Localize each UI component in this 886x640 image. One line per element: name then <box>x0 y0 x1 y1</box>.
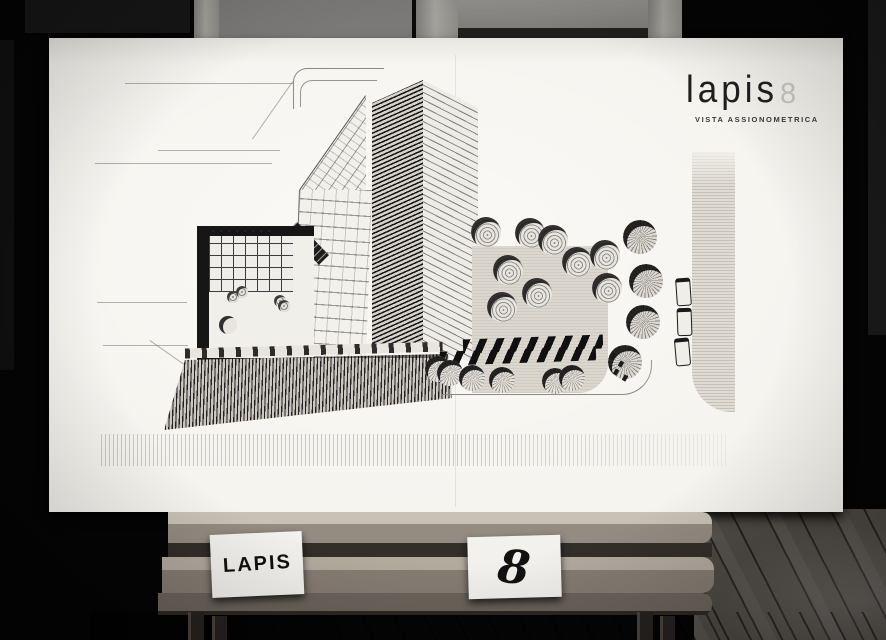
wood-floor-front <box>90 612 886 640</box>
background-wall-edge <box>868 0 886 335</box>
tree <box>236 286 248 298</box>
roof-parapet-line <box>252 81 293 139</box>
tree <box>487 292 517 322</box>
label-card-number-text: 8 <box>496 538 534 595</box>
construction-line <box>103 345 188 346</box>
tree <box>493 255 523 285</box>
easel-leg <box>212 616 227 640</box>
tree <box>538 225 568 255</box>
label-card-lapis-text: LAPIS <box>222 551 292 578</box>
background-wall-edge-left <box>0 40 14 370</box>
tower-block-shaded-face <box>372 80 423 354</box>
label-card-lapis: LAPIS <box>210 531 305 598</box>
car <box>675 278 692 307</box>
street-curb-line <box>441 360 652 395</box>
hatched-roof-slope <box>164 354 456 432</box>
background-wall-patch <box>25 0 190 33</box>
tower-block-light-face <box>423 80 478 370</box>
label-card-number: 8 <box>467 535 562 599</box>
street-paving-band <box>101 434 729 466</box>
car <box>677 308 693 337</box>
presentation-board: lapis 8 VISTA ASSIONOMETRICA <box>49 38 843 512</box>
tree <box>592 273 622 303</box>
tree <box>562 247 592 277</box>
lapis-logo: lapis <box>686 68 778 111</box>
tree <box>278 300 290 312</box>
drawing-subtitle: VISTA ASSIONOMETRICA <box>695 115 819 124</box>
construction-line <box>125 83 293 84</box>
car <box>674 337 691 366</box>
easel-upright-left <box>194 0 219 41</box>
construction-line <box>97 302 187 303</box>
tree <box>471 217 501 247</box>
photo-scene: lapis 8 VISTA ASSIONOMETRICA LAPIS 8 <box>0 0 886 640</box>
tree <box>629 264 663 298</box>
road-strip <box>692 152 735 412</box>
easel-leg <box>637 612 653 640</box>
construction-line <box>158 150 280 151</box>
tree <box>522 278 552 308</box>
easel-upright-right <box>648 0 682 43</box>
easel-back-panel <box>458 0 648 40</box>
easel-leg <box>188 612 204 640</box>
construction-line <box>95 163 272 164</box>
courtyard-skylight-grid <box>209 236 293 292</box>
tree <box>623 220 657 254</box>
tree <box>590 240 620 270</box>
easel-leg <box>660 616 675 640</box>
easel-upright-center <box>416 0 458 41</box>
logo-issue-number: 8 <box>780 78 796 111</box>
fountain <box>219 316 237 334</box>
courtyard-dots <box>212 230 272 232</box>
tree <box>626 305 660 339</box>
